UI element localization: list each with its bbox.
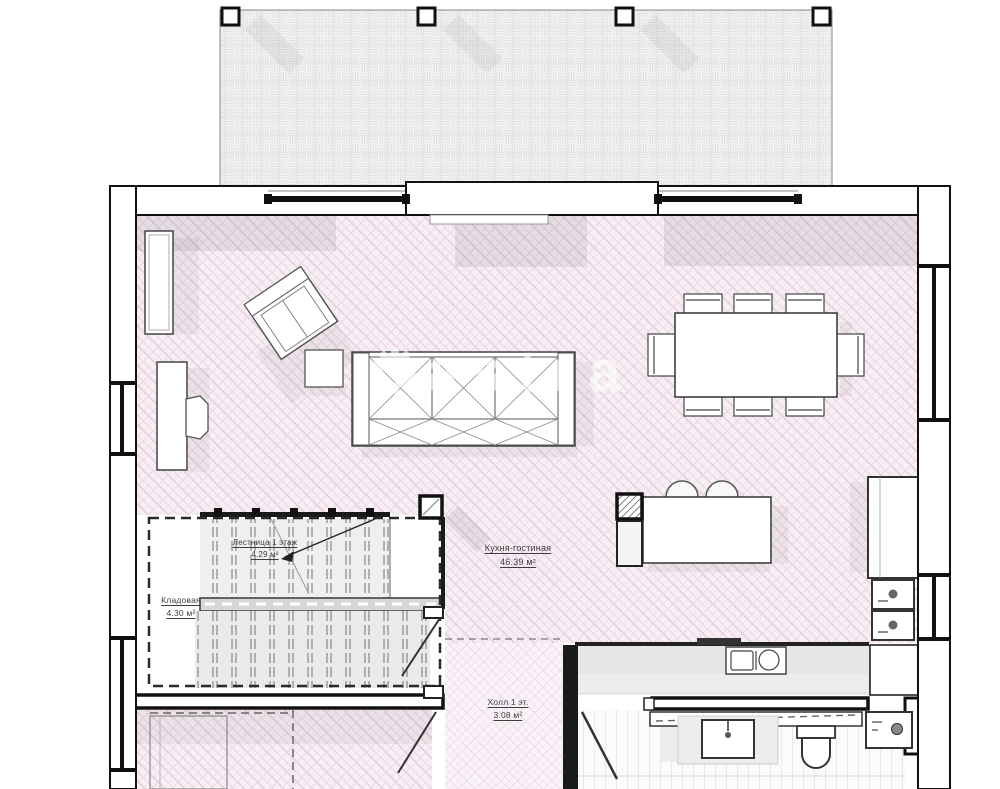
oven-2 (872, 611, 914, 640)
island-column (617, 494, 642, 519)
washing-machine (866, 712, 912, 748)
desk-chair (186, 396, 208, 439)
side-table (305, 350, 343, 387)
washbasin (702, 720, 754, 758)
kitchen-sink (726, 647, 786, 674)
column (420, 496, 442, 518)
cooktop (697, 638, 741, 645)
sliding-window (658, 196, 798, 202)
dining-table (675, 313, 837, 397)
oven-1 (872, 580, 914, 609)
staircase (149, 508, 443, 688)
hall-floor (445, 643, 563, 789)
floor-plan: ⚙ astra Кухня-гостиная 46.39 м² Лестница… (0, 0, 1000, 789)
duct (870, 645, 918, 695)
dining-set (648, 294, 864, 416)
kitchen-tall-cabinet (868, 477, 918, 640)
wall-cabinet (145, 231, 173, 334)
kitchen-counter (575, 638, 920, 695)
floor-plan-drawing (0, 0, 1000, 789)
sofa (352, 352, 575, 446)
terrace (220, 8, 832, 187)
sliding-window (268, 196, 406, 202)
